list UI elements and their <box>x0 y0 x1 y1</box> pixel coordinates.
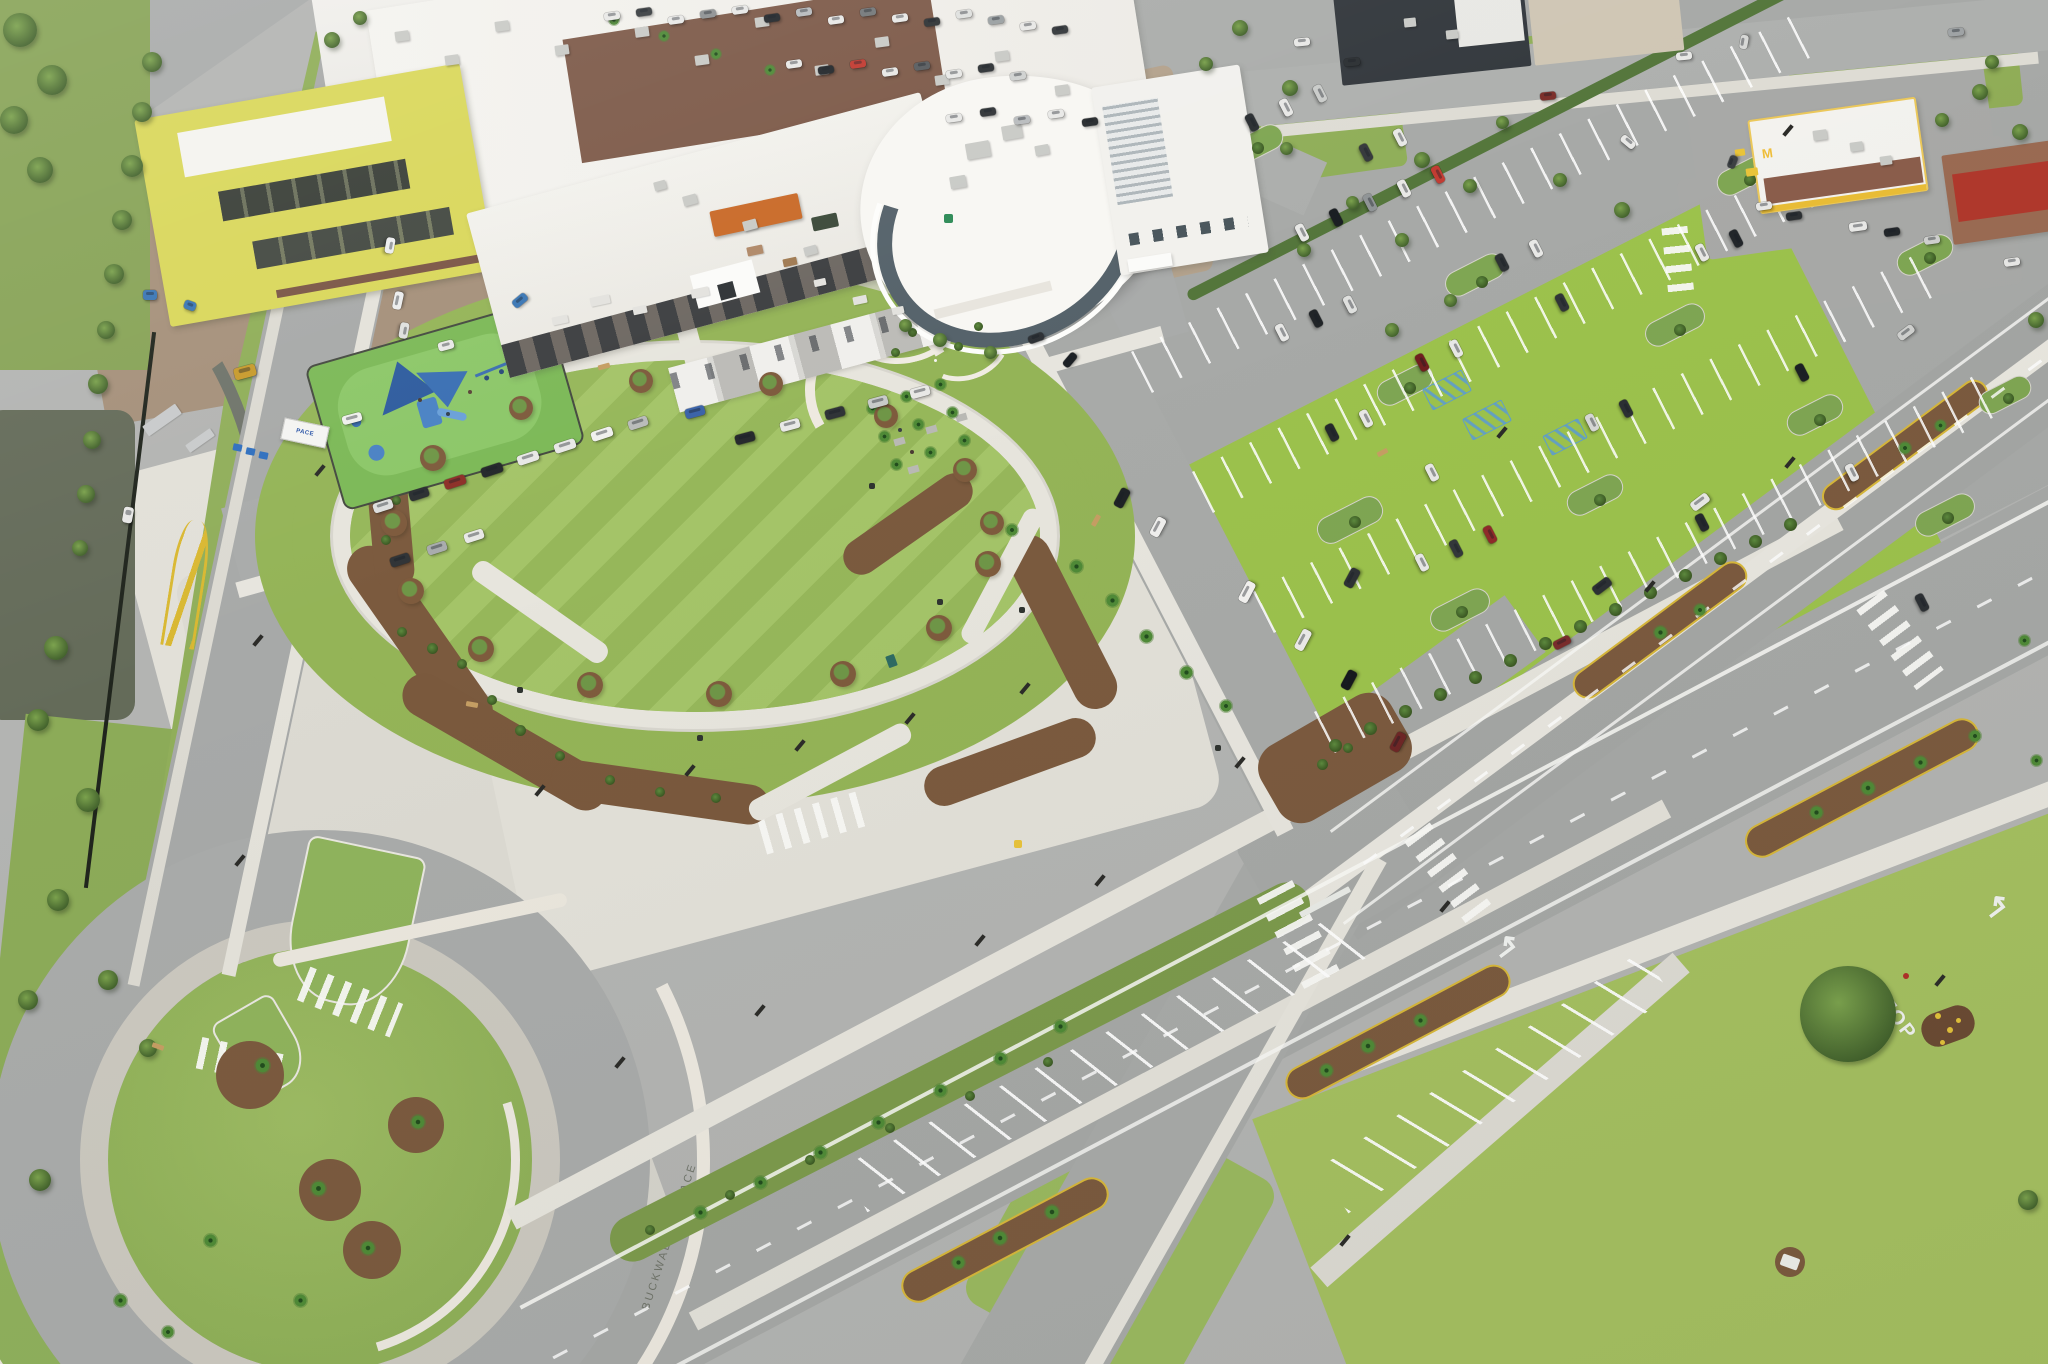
wing-windows <box>1128 215 1248 246</box>
tree <box>1614 202 1630 218</box>
street-lamp <box>1339 1234 1350 1247</box>
tree <box>2028 312 2044 328</box>
palm-tree <box>1139 629 1154 644</box>
palm-tree <box>1913 755 1928 770</box>
vehicle <box>1278 97 1294 117</box>
palm-tree <box>933 1083 948 1098</box>
shrub <box>805 1155 815 1165</box>
landscaped-verge <box>602 874 1318 1269</box>
tree <box>1346 196 1359 209</box>
white-roof-section <box>1453 0 1525 47</box>
shrub <box>1594 494 1606 506</box>
tree <box>1444 294 1457 307</box>
window-band <box>218 159 410 222</box>
angled-parking-stalls <box>1318 951 1672 1214</box>
vehicle <box>1294 222 1310 242</box>
palm-tree <box>1968 729 1982 743</box>
aerial-photo-stage: BUCKWALTER PLACE STOP ↰ ↰ <box>0 0 2048 1364</box>
vehicle <box>1948 27 1965 37</box>
street-lamp <box>1094 874 1105 887</box>
shrub <box>1476 276 1488 288</box>
vehicle <box>1884 227 1901 237</box>
vehicle <box>392 290 405 309</box>
street-lamp <box>1496 426 1507 439</box>
tree <box>1297 243 1311 257</box>
park-bench <box>1376 447 1388 456</box>
palm-tree <box>1860 780 1876 796</box>
palm-tree <box>1044 1204 1060 1220</box>
turn-arrow-marking: ↰ <box>1973 886 2017 929</box>
shrub <box>885 1123 895 1133</box>
mulch-patch <box>1775 1247 1805 1277</box>
vehicle <box>2004 257 2021 267</box>
angled-parking-stalls <box>844 912 1367 1213</box>
trash-can <box>1215 745 1221 751</box>
louver-screen <box>1102 98 1173 206</box>
tree <box>112 210 132 230</box>
red-roof <box>1952 160 2048 222</box>
vehicle <box>1062 351 1078 368</box>
small-sign <box>1735 148 1746 156</box>
construction-roof-cap <box>177 97 392 178</box>
window-band <box>252 207 454 269</box>
vehicle <box>1389 731 1407 753</box>
palm-tree <box>1360 1038 1376 1054</box>
small-sign <box>1779 1253 1800 1270</box>
vehicle <box>1293 628 1312 652</box>
landscaped-verge <box>1917 1001 1979 1051</box>
shrub <box>725 1190 735 1200</box>
vehicle <box>1294 37 1311 47</box>
tree <box>1282 80 1298 96</box>
tree <box>1972 84 1988 100</box>
mcdonalds-building: M <box>1747 97 1929 215</box>
palm-tree <box>951 1255 966 1270</box>
flower-bed-bloom <box>1935 1013 1941 1019</box>
brick-base-line <box>276 254 484 298</box>
tree <box>1496 116 1509 129</box>
street-lamp <box>1934 974 1945 987</box>
vehicle <box>1424 462 1440 482</box>
vehicle <box>233 363 257 380</box>
accessible-hatch <box>1462 399 1512 440</box>
vehicle <box>1848 220 1867 231</box>
dark-roof-building <box>1333 0 1532 86</box>
street-lamp <box>974 934 985 947</box>
vehicle <box>1482 524 1498 544</box>
parking-island <box>1641 299 1710 351</box>
health-campus-logo <box>944 214 953 223</box>
street-lamp <box>754 1004 765 1017</box>
vehicle <box>1342 294 1358 314</box>
tree <box>121 155 143 177</box>
sidewalk <box>1322 773 2048 1082</box>
palm-tree <box>1053 1019 1068 1034</box>
shrub <box>1252 142 1264 154</box>
vehicle <box>1358 142 1374 162</box>
shrub <box>1349 516 1361 528</box>
vehicle <box>1540 91 1557 101</box>
vehicle <box>1430 164 1446 184</box>
street-lamp <box>1439 900 1450 913</box>
fastfood-red-roof-building <box>1941 139 2048 245</box>
vehicle <box>1676 51 1693 61</box>
flower-bed-bloom <box>1940 1040 1945 1045</box>
street-median <box>895 1171 1114 1308</box>
palm-tree <box>2018 634 2031 647</box>
street-lamp <box>1234 756 1245 769</box>
tree <box>1280 142 1293 155</box>
construction-building <box>134 63 495 327</box>
flower-bed-bloom <box>1947 1027 1953 1033</box>
tree <box>1385 323 1399 337</box>
palm-tree <box>1219 699 1233 713</box>
parking-island <box>1441 249 1510 301</box>
shrub <box>1814 414 1826 426</box>
tree <box>3 13 37 47</box>
health-campus-wing <box>1091 64 1269 275</box>
vehicle <box>1924 235 1941 245</box>
shrub <box>1674 324 1686 336</box>
street-median <box>1739 712 1985 863</box>
parking-island <box>1782 390 1847 440</box>
tree <box>1232 20 1248 36</box>
vehicle <box>1149 516 1167 538</box>
tree <box>0 106 28 134</box>
vehicle <box>1392 127 1408 147</box>
parking-island <box>1911 489 1980 541</box>
tree <box>1414 152 1430 168</box>
vehicle <box>1396 178 1412 198</box>
vehicle <box>1726 155 1738 170</box>
zebra-crosswalk <box>1856 590 1943 690</box>
palm-tree <box>992 1230 1008 1246</box>
vehicle <box>1362 192 1378 212</box>
shrub <box>1317 759 1328 770</box>
shrub <box>1456 606 1468 618</box>
small-sign <box>1903 973 1909 979</box>
palm-tree <box>813 1145 828 1160</box>
palm-tree <box>753 1175 768 1190</box>
tree <box>37 65 67 95</box>
flower-bed-bloom <box>1956 1018 1961 1023</box>
tree <box>2012 124 2028 140</box>
vehicle <box>1896 323 1916 341</box>
palm-tree <box>1413 1013 1428 1028</box>
mcdonalds-arches-logo: M <box>1761 145 1774 161</box>
tree <box>142 52 162 72</box>
tree <box>27 157 53 183</box>
vehicle <box>1312 83 1328 103</box>
palm-tree <box>871 1115 886 1130</box>
vehicle <box>1494 252 1510 272</box>
vehicle <box>1328 207 1344 227</box>
palm-tree <box>1179 665 1194 680</box>
small-sign <box>1014 840 1022 848</box>
turn-arrow-marking: ↰ <box>1483 926 1527 969</box>
beige-building <box>1528 0 1685 66</box>
vehicle <box>1689 492 1711 512</box>
vehicle <box>1340 669 1358 691</box>
vehicle <box>1528 238 1544 258</box>
palm-tree <box>1809 805 1824 820</box>
tree <box>1985 55 1999 69</box>
palm-tree <box>2030 754 2043 767</box>
palm-tree <box>993 1051 1008 1066</box>
shrub <box>1942 512 1954 524</box>
tree <box>2018 1190 2038 1210</box>
zebra-crosswalk <box>1404 822 1496 929</box>
palm-tree <box>1319 1063 1334 1078</box>
vehicle <box>1914 592 1930 612</box>
stop-road-marking: STOP <box>1865 982 1921 1045</box>
tree <box>1935 113 1949 127</box>
trailer-sign-text: PACE <box>295 428 314 438</box>
